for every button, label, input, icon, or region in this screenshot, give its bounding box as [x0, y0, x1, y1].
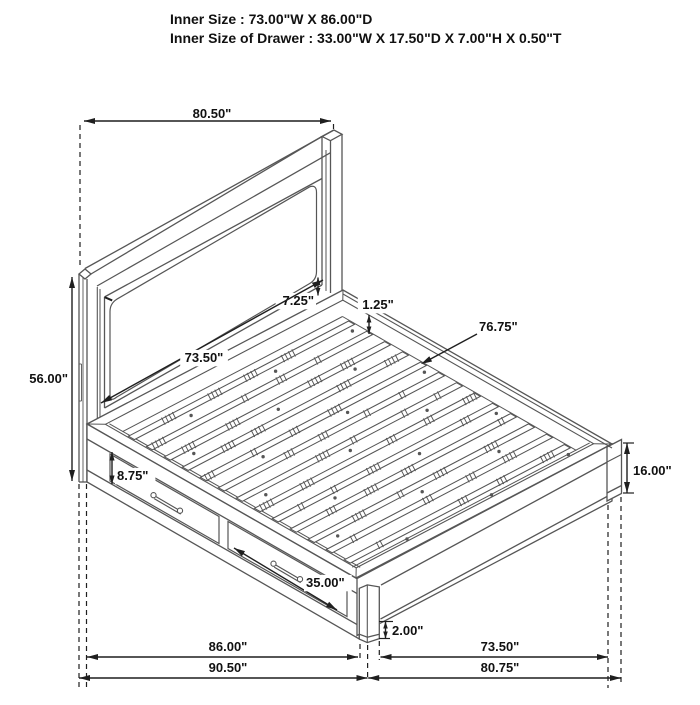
- svg-text:80.75": 80.75": [481, 660, 520, 675]
- svg-text:80.50": 80.50": [193, 106, 232, 121]
- svg-text:2.00": 2.00": [392, 623, 423, 638]
- svg-text:73.50": 73.50": [185, 350, 224, 365]
- svg-text:76.75": 76.75": [479, 319, 518, 334]
- svg-text:73.50": 73.50": [481, 639, 520, 654]
- svg-text:90.50": 90.50": [209, 660, 248, 675]
- svg-text:Inner Size : 73.00"W X 86.00"D: Inner Size : 73.00"W X 86.00"D: [170, 11, 372, 27]
- svg-text:86.00": 86.00": [209, 639, 248, 654]
- svg-text:1.25": 1.25": [362, 297, 393, 312]
- svg-text:Inner Size of Drawer : 33.00"W: Inner Size of Drawer : 33.00"W X 17.50"D…: [170, 30, 562, 46]
- svg-text:35.00": 35.00": [306, 575, 345, 590]
- svg-text:56.00": 56.00": [29, 371, 68, 386]
- svg-text:8.75": 8.75": [117, 468, 148, 483]
- svg-text:16.00": 16.00": [633, 463, 672, 478]
